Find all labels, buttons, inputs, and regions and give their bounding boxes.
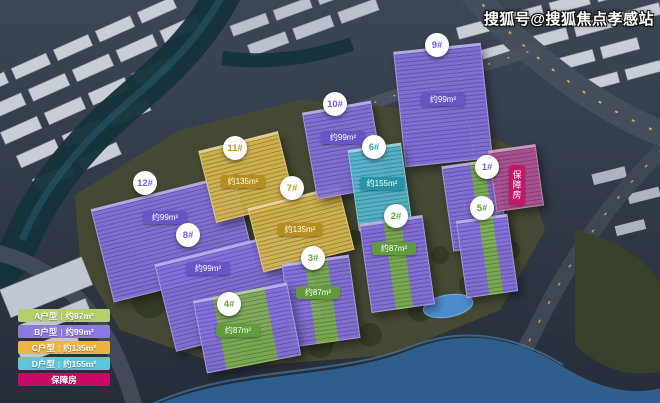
legend-type-label: 保障房 (51, 374, 77, 386)
legend-type-label: C户型 (32, 342, 55, 354)
legend-item-type-b: B户型 | 约99m² (18, 325, 110, 338)
legend-type-label: B户型 (34, 326, 57, 338)
masterplan-rendering: 约99m² 约99m² 约135m² 约135m² 约99m² 约99m² 约1… (0, 0, 660, 403)
legend-item-type-c: C户型 | 约135m² (18, 341, 110, 354)
building-number: 11# (227, 143, 242, 154)
legend-separator: | (58, 359, 60, 369)
building-7-number-badge: 7# (280, 176, 304, 200)
building-number: 12# (137, 178, 153, 189)
building-number: 2# (391, 211, 402, 222)
building-2-number-badge: 2# (384, 204, 408, 228)
building-3-number-badge: 3# (301, 246, 325, 270)
building-6-area-label: 约155m² (360, 177, 404, 190)
building-number: 10# (327, 99, 343, 110)
building-12-number-badge: 12# (133, 171, 157, 195)
building-7-area-label: 约135m² (278, 223, 322, 236)
building-number: 7# (287, 183, 298, 194)
legend-separator: | (58, 343, 60, 353)
legend-type-label: D户型 (32, 358, 55, 370)
building-10-number-badge: 10# (323, 92, 347, 116)
building-9-number-badge: 9# (425, 33, 449, 57)
building-10-area-label: 约99m² (321, 131, 365, 144)
legend-area-value: 约135m² (63, 342, 96, 354)
building-2-area-label: 约87m² (372, 242, 416, 255)
legend-type-label: A户型 (34, 310, 57, 322)
building-number: 6# (369, 142, 380, 153)
building-1-number-badge: 1# (475, 155, 499, 179)
legend-separator: | (60, 327, 62, 337)
building-1-affordable-label: 保障房 (509, 165, 525, 205)
building-9-area-label: 约99m² (421, 93, 465, 106)
building-12-area-label: 约99m² (143, 211, 187, 224)
legend-item-type-a: A户型 | 约87m² (18, 309, 110, 322)
legend-area-value: 约87m² (66, 310, 94, 322)
building-number: 9# (432, 40, 443, 51)
building-8-number-badge: 8# (176, 223, 200, 247)
building-6-number-badge: 6# (362, 135, 386, 159)
building-5-tower (456, 214, 518, 298)
legend-area-value: 约155m² (63, 358, 96, 370)
legend-item-type-d: D户型 | 约155m² (18, 357, 110, 370)
watermark: 搜狐号@搜狐焦点孝感站 (484, 8, 654, 29)
building-11-number-badge: 11# (223, 136, 247, 160)
building-number: 1# (482, 162, 493, 173)
building-3-area-label: 约87m² (296, 286, 340, 299)
building-number: 4# (224, 299, 235, 310)
building-number: 3# (308, 253, 319, 264)
building-4-area-label: 约87m² (216, 324, 260, 337)
building-5-number-badge: 5# (470, 196, 494, 220)
building-2-tower (359, 215, 435, 313)
legend-separator: | (60, 311, 62, 321)
building-number: 8# (183, 230, 194, 241)
building-11-area-label: 约135m² (221, 175, 265, 188)
building-8-area-label: 约99m² (186, 262, 230, 275)
legend-area-value: 约99m² (66, 326, 94, 338)
unit-type-legend: A户型 | 约87m² B户型 | 约99m² C户型 | 约135m² D户型… (18, 309, 110, 386)
building-number: 5# (477, 203, 488, 214)
building-4-number-badge: 4# (217, 292, 241, 316)
legend-item-affordable-housing: 保障房 (18, 373, 110, 386)
